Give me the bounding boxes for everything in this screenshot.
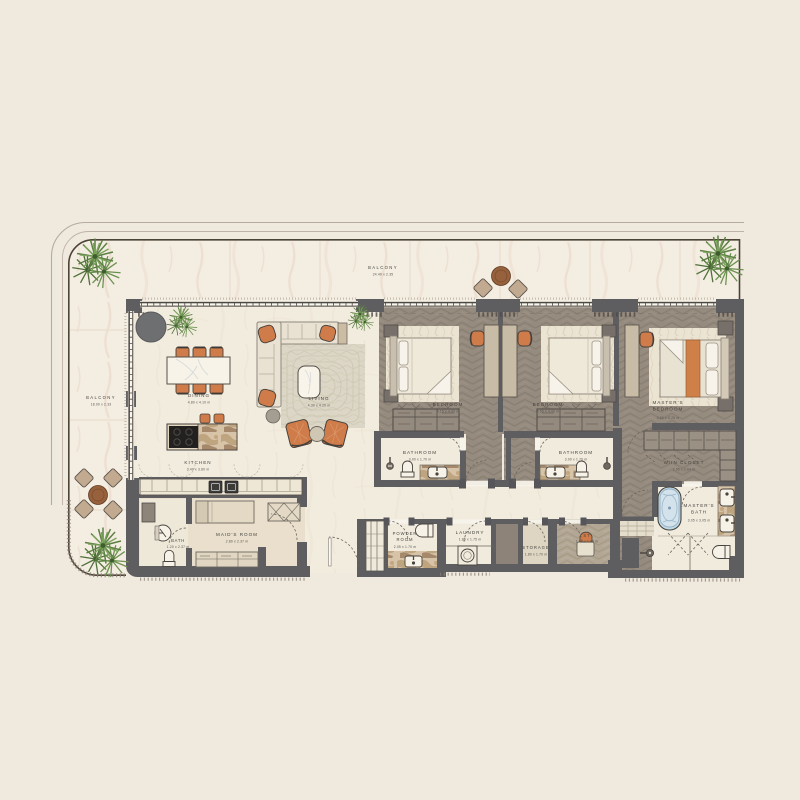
svg-text:3.00 x 1.70 m: 3.00 x 1.70 m xyxy=(565,458,588,462)
svg-text:4.30 x 4.20 m: 4.30 x 4.20 m xyxy=(308,404,331,408)
svg-text:POWDER: POWDER xyxy=(393,531,418,536)
svg-text:BATH: BATH xyxy=(691,510,707,515)
svg-text:BATHROOM: BATHROOM xyxy=(559,450,593,455)
svg-text:3.05 x 3.05 m: 3.05 x 3.05 m xyxy=(688,519,711,523)
svg-text:ROOM: ROOM xyxy=(396,537,413,542)
svg-text:BEDROOM: BEDROOM xyxy=(433,402,464,407)
svg-text:18.00 x 2.33: 18.00 x 2.33 xyxy=(91,403,112,407)
svg-text:3.00 x 1.70 m: 3.00 x 1.70 m xyxy=(409,458,432,462)
svg-text:STORAGE: STORAGE xyxy=(522,545,549,550)
svg-text:BATH: BATH xyxy=(171,538,185,543)
svg-text:3.40 x 3.60 m: 3.40 x 3.60 m xyxy=(187,468,210,472)
svg-text:LAUNDRY: LAUNDRY xyxy=(456,530,485,535)
svg-text:4.15 x 4.00 m: 4.15 x 4.00 m xyxy=(437,410,460,414)
svg-text:LIVING: LIVING xyxy=(308,396,329,401)
svg-text:1.80 x 1.70 m: 1.80 x 1.70 m xyxy=(525,553,548,557)
svg-text:BALCONY: BALCONY xyxy=(368,265,398,270)
svg-text:4.80 x 4.10 m: 4.80 x 4.10 m xyxy=(188,401,211,405)
svg-text:2.95 x 2.64 m: 2.95 x 2.64 m xyxy=(673,468,696,472)
svg-text:BATHROOM: BATHROOM xyxy=(403,450,437,455)
svg-text:BEDROOM: BEDROOM xyxy=(533,402,564,407)
svg-text:DINING: DINING xyxy=(188,393,210,398)
svg-text:1.20 x 2.37 m: 1.20 x 2.37 m xyxy=(167,545,190,549)
svg-text:4.55 x 4.00 m: 4.55 x 4.00 m xyxy=(537,410,560,414)
svg-text:KITCHEN: KITCHEN xyxy=(184,460,211,465)
svg-text:BALCONY: BALCONY xyxy=(86,395,116,400)
svg-text:MASTER'S: MASTER'S xyxy=(683,503,714,508)
svg-text:24.49 x 2.35: 24.49 x 2.35 xyxy=(373,273,394,277)
svg-text:1.85 x 1.75 m: 1.85 x 1.75 m xyxy=(459,538,482,542)
svg-text:BEDROOM: BEDROOM xyxy=(653,407,684,412)
svg-text:MAID'S ROOM: MAID'S ROOM xyxy=(216,532,258,537)
svg-text:1.99 x 1.88 m: 1.99 x 1.88 m xyxy=(576,540,599,544)
svg-text:ST: ST xyxy=(583,533,590,538)
svg-text:4.60 x 5.25 m: 4.60 x 5.25 m xyxy=(657,416,680,420)
svg-text:2.05 x 1.70 m: 2.05 x 1.70 m xyxy=(394,545,417,549)
svg-text:W/IN CLOSET: W/IN CLOSET xyxy=(664,460,705,465)
svg-text:2.80 x 2.37 m: 2.80 x 2.37 m xyxy=(226,540,249,544)
svg-text:MASTER'S: MASTER'S xyxy=(652,400,683,405)
